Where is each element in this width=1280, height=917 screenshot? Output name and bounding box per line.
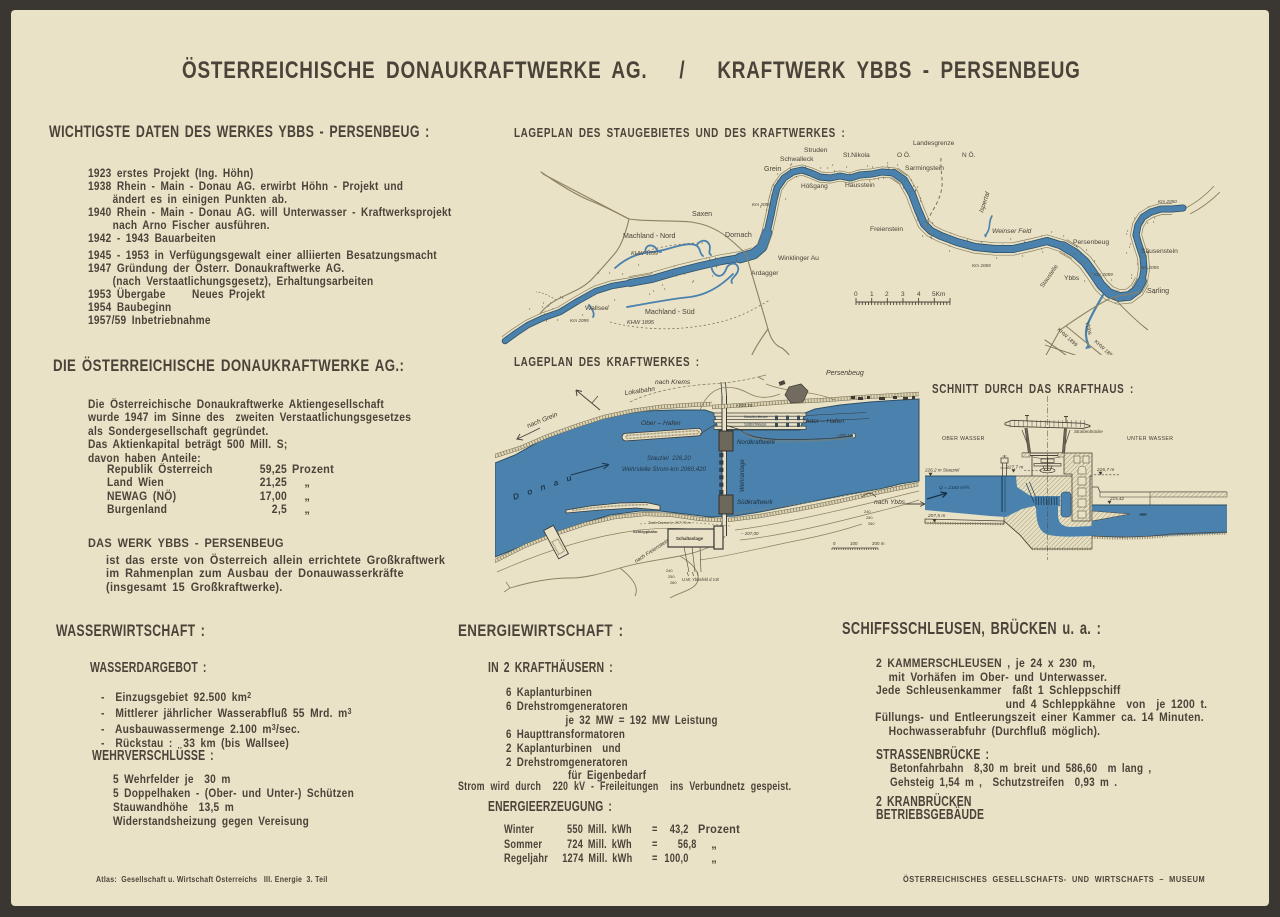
svg-text:Km 2065: Km 2065 [972,263,991,268]
svg-text:0: 0 [854,291,858,298]
svg-text:Sarmingstein: Sarmingstein [905,165,944,172]
svg-text:3: 3 [901,291,905,298]
svg-text:Wehrstelle Strom-km 2060,420: Wehrstelle Strom-km 2060,420 [622,466,706,473]
svg-text:240: 240 [864,509,871,514]
svg-text:4: 4 [917,291,921,298]
svg-text:+205,10: +205,10 [837,433,853,438]
svg-text:5Km: 5Km [932,291,945,298]
svg-text:250: 250 [866,515,873,520]
svg-text:227,7 m: 227,7 m [1005,465,1023,471]
svg-text:Machland - Süd: Machland - Süd [645,308,695,316]
svg-text:Südkraftwerk: Südkraftwerk [737,499,774,506]
svg-text:Winklinger Au: Winklinger Au [778,255,819,262]
svg-text:UNTER WASSER: UNTER WASSER [1127,436,1173,442]
svg-text:Km 2055: Km 2055 [1140,265,1159,270]
svg-text:Straßenbrücke: Straßenbrücke [1074,429,1103,434]
svg-text:Weinser Feld: Weinser Feld [992,228,1032,235]
svg-text:KHW 1899: KHW 1899 [631,251,658,257]
svg-text:2: 2 [885,291,889,298]
svg-text:– 207,00: – 207,00 [740,531,759,536]
svg-text:100: 100 [850,541,858,546]
svg-text:207,5 m: 207,5 m [927,513,945,519]
svg-text:Säusenstein: Säusenstein [1141,248,1178,255]
svg-text:226,2 m Stauziel: 226,2 m Stauziel [924,468,960,473]
svg-text:Q = 2160 m³/s: Q = 2160 m³/s [939,485,970,491]
svg-text:Unter – Hafen: Unter – Hafen [803,418,844,425]
svg-text:Ardagger: Ardagger [751,270,779,277]
svg-text:Saxen: Saxen [692,210,712,218]
svg-text:KHW 1899: KHW 1899 [1056,327,1079,348]
svg-text:Landesgrenze: Landesgrenze [913,140,955,147]
svg-text:Km 2059: Km 2059 [1094,272,1113,277]
svg-text:Hausstein: Hausstein [845,182,875,189]
svg-text:Km 2095: Km 2095 [570,318,589,323]
svg-text:Struden: Struden [804,147,828,154]
svg-text:O Ö.: O Ö. [897,151,911,159]
svg-text:Lokalbahn: Lokalbahn [624,386,655,397]
svg-text:Schwalleck: Schwalleck [780,156,814,163]
svg-text:Treib Damm b. 207,70 m: Treib Damm b. 207,70 m [648,520,691,525]
svg-text:nach Ybbs: nach Ybbs [874,499,906,506]
svg-text:Sarling: Sarling [1147,287,1169,295]
svg-text:Km 2050: Km 2050 [1158,199,1177,204]
svg-text:Grein: Grein [764,165,781,173]
svg-text:Machland - Nord: Machland - Nord [623,232,675,240]
svg-text:Staustelle: Staustelle [1040,264,1060,290]
svg-text:Nordschleuse: Nordschleuse [744,414,769,419]
svg-text:1: 1 [870,291,874,298]
svg-text:+207,70: +207,70 [736,403,753,408]
svg-text:Freienstein: Freienstein [870,226,903,233]
svg-text:200 m: 200 m [872,541,885,546]
svg-text:nach Grein: nach Grein [526,411,559,430]
svg-text:Wehranlage: Wehranlage [739,459,746,492]
svg-text:Ybbs: Ybbs [1083,321,1092,336]
svg-text:Südschleuse: Südschleuse [744,422,767,427]
svg-text:250: 250 [668,574,675,579]
svg-text:Ispertal: Ispertal [978,191,991,214]
svg-text:St.Nikola: St.Nikola [843,152,870,159]
svg-text:Nordkraftwerk: Nordkraftwerk [737,439,776,446]
svg-text:nach Krems: nach Krems [655,379,691,386]
svg-text:260: 260 [670,580,677,585]
svg-text:215,42: 215,42 [1109,496,1124,501]
svg-text:Stauziel 226,20: Stauziel 226,20 [647,455,691,462]
svg-text:KHW 1893: KHW 1893 [1093,339,1116,355]
svg-text:Ober – Hafen: Ober – Hafen [641,420,681,427]
svg-text:Persenbeug: Persenbeug [826,370,864,377]
svg-text:Persenbeug: Persenbeug [1073,239,1109,246]
svg-text:Schaltanlage: Schaltanlage [676,536,704,541]
svg-text:U.W. Ybbsfeld d.V.B: U.W. Ybbsfeld d.V.B [682,577,719,582]
svg-text:Schleppbahn: Schleppbahn [633,529,658,534]
svg-text:0: 0 [833,541,836,546]
svg-text:226,7 m: 226,7 m [1096,467,1114,473]
svg-text:260: 260 [868,521,875,526]
svg-text:Km 2090: Km 2090 [752,202,771,207]
svg-text:OBER WASSER: OBER WASSER [942,436,985,442]
svg-text:240: 240 [666,568,673,573]
svg-text:Wallsee: Wallsee [585,305,609,312]
svg-text:Hößgang: Hößgang [801,183,828,190]
svg-text:N Ö.: N Ö. [962,151,976,159]
svg-text:Ybbs: Ybbs [1064,275,1080,282]
svg-text:KHW 1895: KHW 1895 [627,320,655,326]
svg-text:Dornach: Dornach [725,231,752,239]
